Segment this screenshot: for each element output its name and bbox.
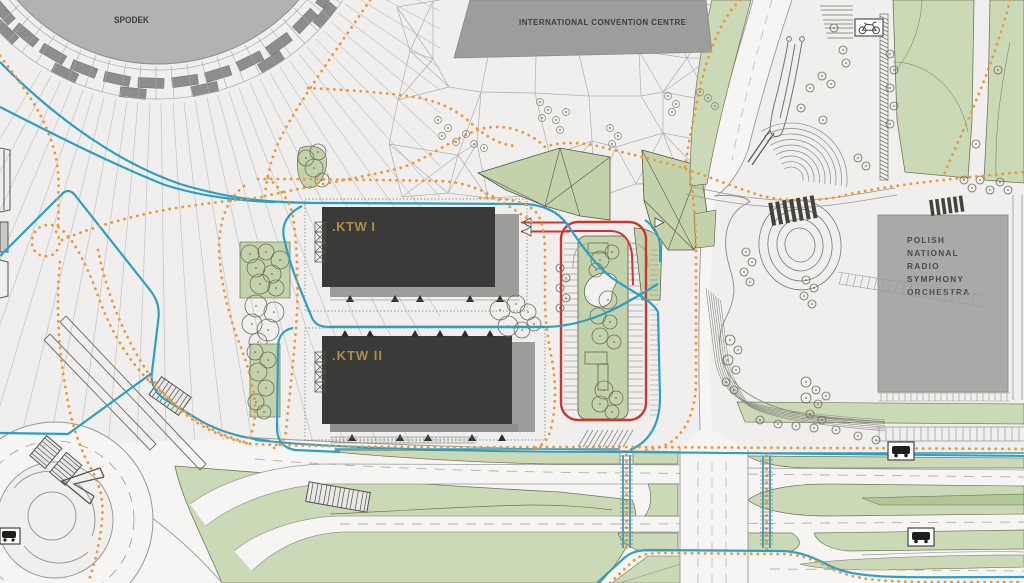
svg-text:.KTW I: .KTW I <box>332 219 377 234</box>
svg-text:NATIONAL: NATIONAL <box>907 248 959 258</box>
svg-text:RADIO: RADIO <box>907 261 940 271</box>
svg-text:SPODEK: SPODEK <box>114 15 149 26</box>
svg-text:INTERNATIONAL CONVENTION CENTR: INTERNATIONAL CONVENTION CENTRE <box>519 18 687 27</box>
svg-text:POLISH: POLISH <box>907 235 945 245</box>
svg-text:SYMPHONY: SYMPHONY <box>907 274 964 284</box>
svg-text:.KTW II: .KTW II <box>332 348 384 363</box>
